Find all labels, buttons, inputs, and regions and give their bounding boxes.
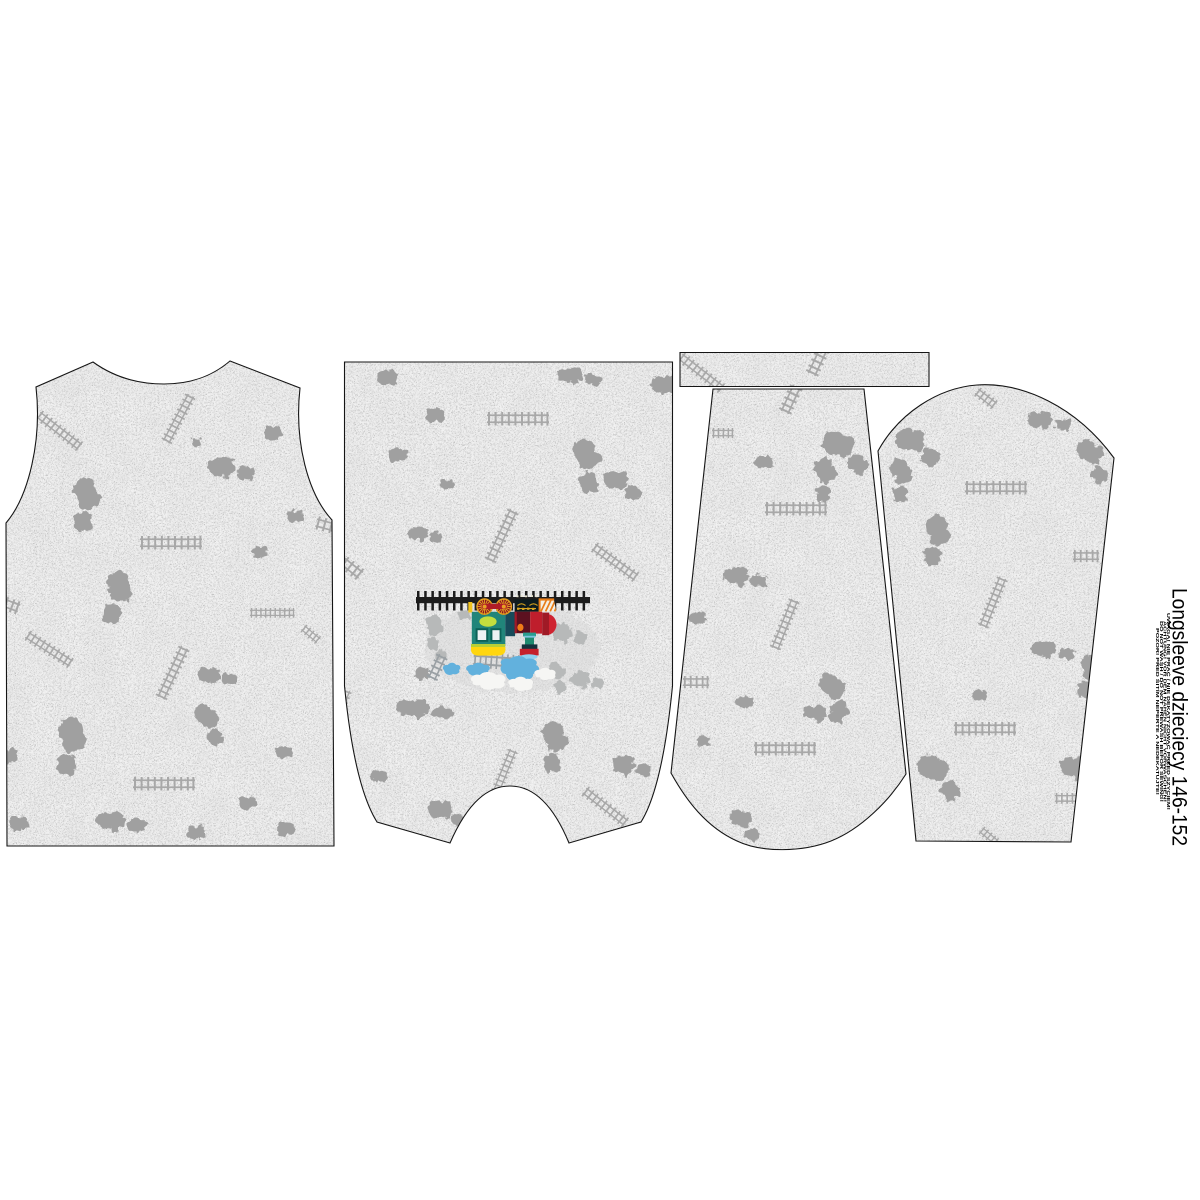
svg-text:POZOR! PŘED ŠITÍM NEPERTE A NE: POZOR! PŘED ŠITÍM NEPERTE A NEDEKATUJTE! (1155, 628, 1160, 795)
